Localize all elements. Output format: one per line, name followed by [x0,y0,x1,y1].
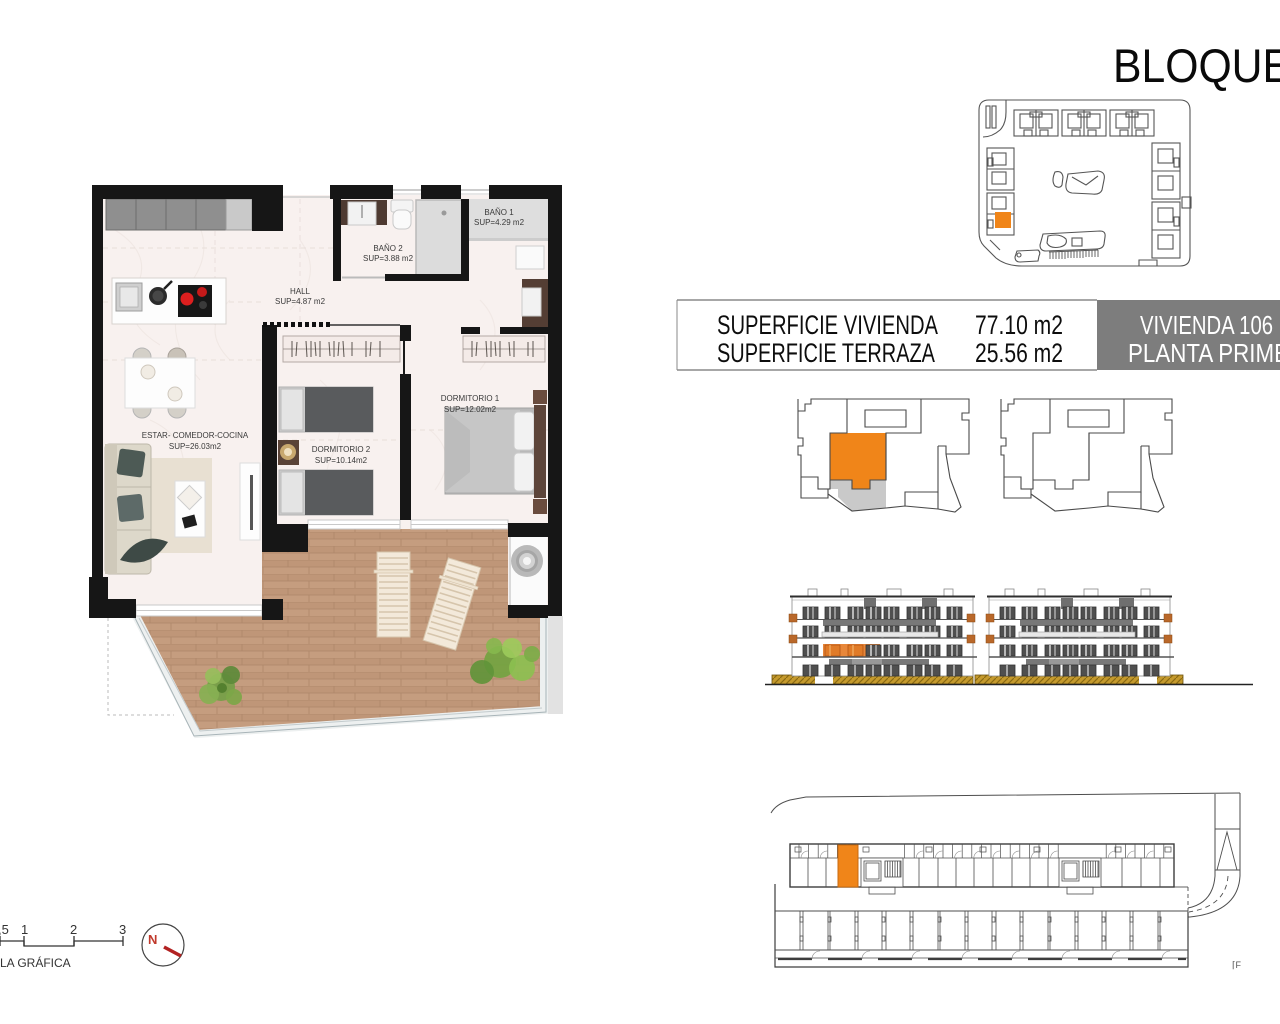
svg-text:DORMITORIO 2: DORMITORIO 2 [312,445,371,454]
svg-text:DORMITORIO 1: DORMITORIO 1 [441,394,500,403]
svg-text:N: N [148,932,157,947]
svg-text:LA GRÁFICA: LA GRÁFICA [0,955,71,970]
svg-text:PLANTA PRIMERA: PLANTA PRIMERA [1128,338,1280,368]
svg-text:SUP=10.14m2: SUP=10.14m2 [315,456,368,465]
svg-text:SUPERFICIE VIVIENDA: SUPERFICIE VIVIENDA [717,310,938,340]
svg-text:SUP=4.29 m2: SUP=4.29 m2 [474,218,525,227]
svg-text:BAÑO 2: BAÑO 2 [373,244,403,253]
svg-text:BAÑO 1: BAÑO 1 [484,208,514,217]
svg-text:BLOQUE: BLOQUE [1113,39,1280,92]
svg-text:HALL: HALL [290,287,311,296]
svg-text:25.56 m2: 25.56 m2 [975,338,1063,368]
svg-text:SUPERFICIE TERRAZA: SUPERFICIE TERRAZA [717,338,935,368]
svg-text:,5: ,5 [0,922,9,937]
svg-text:1: 1 [21,922,28,937]
svg-text:ESTAR- COMEDOR-COCINA: ESTAR- COMEDOR-COCINA [142,431,249,440]
svg-text:SUP=4.87 m2: SUP=4.87 m2 [275,297,326,306]
svg-text:SUP=3.88 m2: SUP=3.88 m2 [363,254,414,263]
svg-text:SUP=26.03m2: SUP=26.03m2 [169,442,222,451]
svg-text:3: 3 [119,922,126,937]
svg-text:⌈F: ⌈F [1232,960,1242,970]
svg-text:VIVIENDA 106: VIVIENDA 106 [1140,310,1273,340]
svg-text:2: 2 [70,922,77,937]
svg-text:SUP=12.02m2: SUP=12.02m2 [444,405,497,414]
svg-text:77.10 m2: 77.10 m2 [975,310,1063,340]
